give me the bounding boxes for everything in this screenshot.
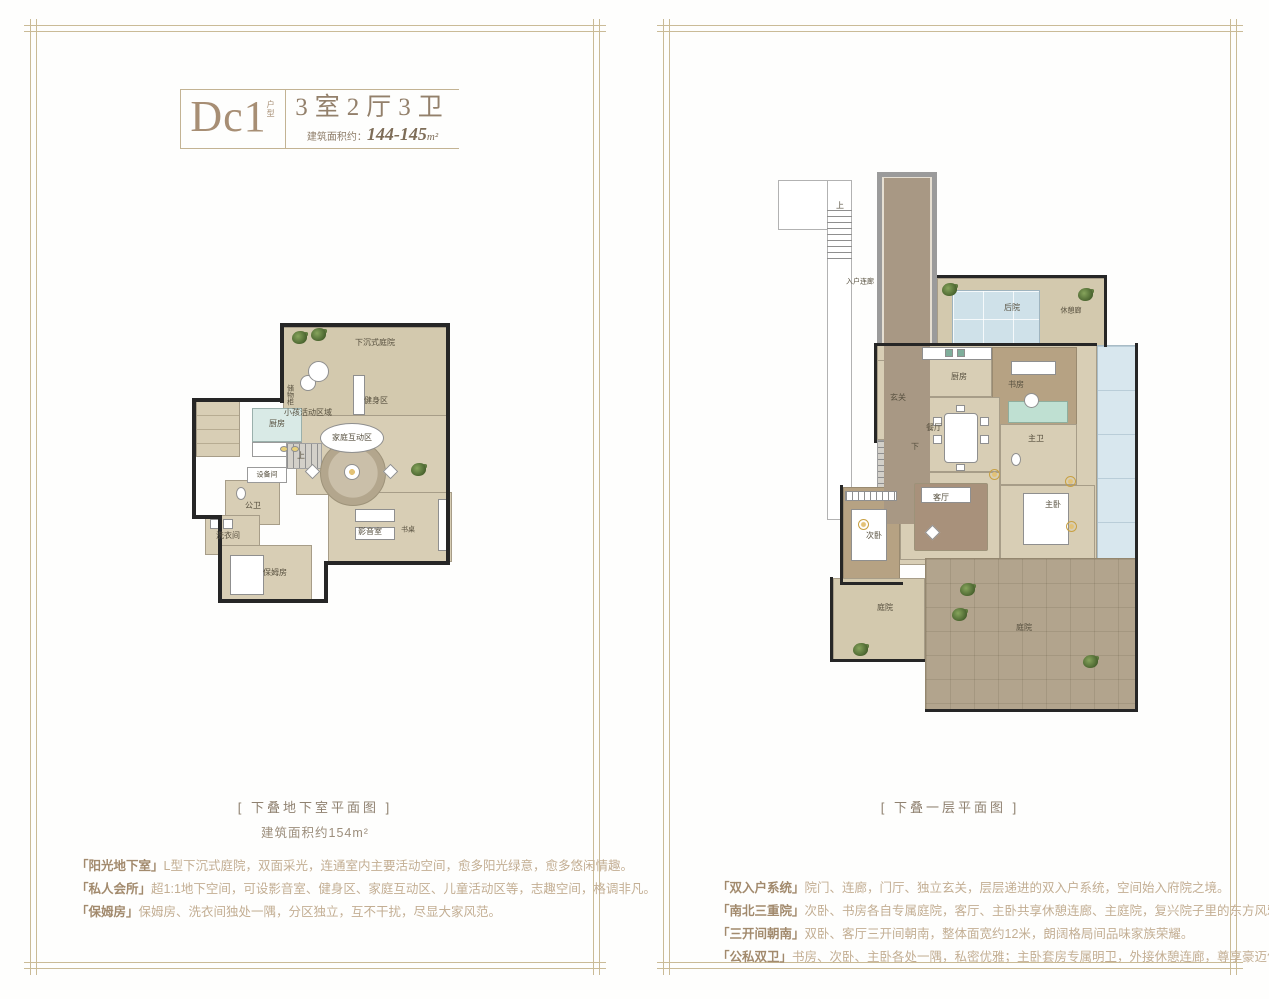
unit-area-value: 144-145 bbox=[367, 124, 427, 144]
light-icon bbox=[1065, 476, 1076, 487]
plant-icon bbox=[1083, 655, 1098, 668]
feature-text: 书房、次卧、主卧各处一隅，私密优雅；主卧套房专属明卫，外接休憩连廊，尊享豪迈气度… bbox=[792, 950, 1269, 964]
frame-line bbox=[657, 31, 1243, 32]
plant-icon bbox=[960, 583, 975, 596]
wall-segment bbox=[218, 515, 222, 603]
wall-segment bbox=[218, 599, 328, 603]
wall-segment bbox=[324, 561, 450, 565]
frame-line bbox=[1230, 19, 1231, 975]
feature-line: 「私人会所」超1:1地下空间，可设影音室、健身区、家庭互动区、儿童活动区等，志趣… bbox=[76, 878, 656, 901]
wall-segment bbox=[280, 323, 450, 327]
plant-icon bbox=[292, 331, 307, 344]
plant-icon bbox=[311, 328, 326, 341]
ground-features: 「双入户系统」院门、连廊，门厅、独立玄关，层层递进的双入户系统，空间始入府院之境… bbox=[717, 877, 1269, 969]
unit-area: 建筑面积约：144-145m² bbox=[307, 124, 438, 145]
unit-layout: 3室2厅3卫 bbox=[295, 94, 450, 122]
feature-text: 保姆房、洗衣间独处一隅，分区独立，互不干扰，尽显大家风范。 bbox=[139, 905, 502, 919]
feature-text: L型下沉式庭院，双面采光，连通室内主要活动空间，愈多阳光绿意，愈多悠闲情趣。 bbox=[164, 859, 633, 873]
right-page-panel: 上 入户连廊 后院 休憩廊 厨房 书房 玄关 餐厅 主卫 下 客厅 主卧 次卧 … bbox=[663, 25, 1237, 969]
feature-text: 双卧、客厅三开间朝南，整体面宽约12米，朗阔格局间品味家族荣耀。 bbox=[805, 927, 1194, 941]
room-courtyard-main bbox=[925, 558, 1138, 712]
washer-icon bbox=[223, 519, 233, 529]
unit-area-unit: m² bbox=[427, 131, 438, 143]
wall-segment bbox=[280, 323, 284, 403]
wall-segment bbox=[1135, 565, 1138, 712]
label-rest-corridor: 休憩廊 bbox=[1061, 308, 1082, 315]
feature-tag: 「公私双卫」 bbox=[717, 950, 792, 964]
outdoor-stair-treads bbox=[827, 210, 852, 262]
label-stairs-down: 下 bbox=[911, 443, 919, 451]
toilet-icon bbox=[236, 487, 246, 500]
feature-line: 「阳光地下室」L型下沉式庭院，双面采光，连通室内主要活动空间，愈多阳光绿意，愈多… bbox=[76, 855, 656, 878]
chair-icon bbox=[980, 417, 989, 426]
plant-icon bbox=[1078, 288, 1093, 301]
label-foyer: 玄关 bbox=[890, 394, 906, 402]
bathtub-icon bbox=[1008, 401, 1068, 423]
unit-code-cell: Dc1 户型 bbox=[181, 90, 286, 148]
feature-line: 「双入户系统」院门、连廊，门厅、独立玄关，层层递进的双入户系统，空间始入府院之境… bbox=[717, 877, 1269, 900]
tea-table-icon bbox=[344, 464, 360, 480]
sofa-icon bbox=[355, 509, 395, 522]
unit-code: Dc1 bbox=[190, 92, 266, 142]
frame-line bbox=[663, 19, 664, 975]
basement-plan-area: 建筑面积约154m² bbox=[30, 822, 600, 841]
chair-icon bbox=[956, 405, 965, 412]
label-stairs-up: 上 bbox=[297, 452, 305, 460]
basement-plan-caption: [ 下叠地下室平面图 ] bbox=[30, 797, 600, 816]
feature-text: 超1:1地下空间，可设影音室、健身区、家庭互动区、儿童活动区等，志趣空间，格调非… bbox=[151, 882, 656, 896]
wall-segment bbox=[937, 275, 1107, 278]
stove-icon bbox=[945, 349, 953, 357]
wall-segment bbox=[1135, 343, 1138, 565]
label-outdoor-stairs-up: 上 bbox=[836, 202, 844, 210]
frame-line bbox=[24, 25, 606, 26]
light-icon bbox=[989, 469, 1000, 480]
toilet-icon bbox=[1011, 453, 1021, 466]
label-guest-bath: 公卫 bbox=[245, 502, 261, 510]
plant-icon bbox=[952, 608, 967, 621]
basement-floor-plan: 下沉式庭院 健身区 小孩活动区域 家庭互动区 厨房 储物柜 设备间 公卫 洗衣间… bbox=[180, 323, 470, 623]
label-backyard: 后院 bbox=[1004, 304, 1020, 312]
bed-icon bbox=[230, 555, 264, 595]
feature-tag: 「双入户系统」 bbox=[717, 881, 805, 895]
unit-title-block: Dc1 户型 3室2厅3卫 建筑面积约：144-145m² bbox=[180, 89, 459, 149]
sink-icon bbox=[957, 349, 965, 357]
feature-line: 「三开间朝南」双卧、客厅三开间朝南，整体面宽约12米，朗阔格局间品味家族荣耀。 bbox=[717, 923, 1269, 946]
frame-line bbox=[1236, 19, 1237, 975]
label-equipment: 设备间 bbox=[257, 472, 278, 479]
label-dining: 餐厅 bbox=[926, 424, 942, 432]
rest-corridor-glass bbox=[1097, 345, 1138, 565]
room-courtyard-west bbox=[833, 578, 925, 662]
unit-area-prefix: 建筑面积约： bbox=[307, 132, 367, 143]
feature-line: 「保姆房」保姆房、洗衣间独处一隅，分区独立，互不干扰，尽显大家风范。 bbox=[76, 901, 656, 924]
room-storage bbox=[196, 400, 240, 457]
backyard-pool bbox=[952, 290, 1040, 345]
left-page-panel: Dc1 户型 3室2厅3卫 建筑面积约：144-145m² bbox=[30, 25, 600, 969]
wall-segment bbox=[874, 343, 877, 443]
feature-line: 「南北三重院」次卧、书房各自专属庭院，客厅、主卧共享休憩连廊、主庭院，复兴院子里… bbox=[717, 900, 1269, 923]
label-study: 书房 bbox=[1008, 381, 1024, 389]
label-entry-corridor: 入户连廊 bbox=[846, 279, 874, 286]
feature-tag: 「私人会所」 bbox=[76, 882, 151, 896]
label-second-bed: 次卧 bbox=[866, 532, 882, 540]
sink-icon bbox=[280, 446, 288, 452]
plant-icon bbox=[942, 283, 957, 296]
basement-features: 「阳光地下室」L型下沉式庭院，双面采光，连通室内主要活动空间，愈多阳光绿意，愈多… bbox=[76, 855, 656, 924]
label-nanny: 保姆房 bbox=[263, 569, 287, 577]
chair-icon bbox=[956, 464, 965, 471]
label-av-room: 影音室 bbox=[358, 528, 382, 536]
wardrobe-icon bbox=[845, 491, 897, 501]
label-cabinet: 储物柜 bbox=[287, 385, 294, 406]
feature-tag: 「阳光地下室」 bbox=[76, 859, 164, 873]
wall-segment bbox=[877, 343, 1097, 346]
feature-tag: 「三开间朝南」 bbox=[717, 927, 805, 941]
label-courtyard-west: 庭院 bbox=[877, 604, 893, 612]
label-laundry: 洗衣间 bbox=[216, 532, 240, 540]
label-desk: 书桌 bbox=[401, 527, 415, 534]
plant-icon bbox=[411, 463, 426, 476]
label-courtyard-main: 庭院 bbox=[1016, 624, 1032, 632]
desk-icon bbox=[1011, 361, 1056, 375]
light-icon bbox=[858, 519, 869, 530]
feature-text: 院门、连廊，门厅、独立玄关，层层递进的双入户系统，空间始入府院之境。 bbox=[805, 881, 1230, 895]
unit-code-tag: 户型 bbox=[267, 100, 276, 118]
ground-plan-caption: [ 下叠一层平面图 ] bbox=[663, 797, 1237, 816]
wall-segment bbox=[192, 398, 284, 402]
wall-segment bbox=[192, 398, 196, 519]
label-family-area: 家庭互动区 bbox=[332, 434, 372, 442]
wall-segment bbox=[324, 561, 328, 603]
plant-icon bbox=[853, 643, 868, 656]
feature-line: 「公私双卫」书房、次卧、主卧各处一隅，私密优雅；主卧套房专属明卫，外接休憩连廊，… bbox=[717, 946, 1269, 969]
frame-line bbox=[657, 25, 1243, 26]
wall-segment bbox=[840, 485, 843, 585]
table-icon bbox=[1024, 393, 1039, 408]
label-master-bed: 主卧 bbox=[1045, 501, 1061, 509]
label-kitchen: 厨房 bbox=[269, 420, 285, 428]
chair-icon bbox=[980, 435, 989, 444]
frame-line bbox=[24, 962, 606, 963]
play-table-icon bbox=[308, 361, 329, 382]
label-sunken-courtyard: 下沉式庭院 bbox=[355, 339, 395, 347]
frame-line bbox=[24, 31, 606, 32]
frame-line bbox=[24, 968, 606, 969]
page: { "left_panel": { "title": { "code": "Dc… bbox=[0, 0, 1269, 999]
label-kids-area: 小孩活动区域 bbox=[284, 409, 332, 417]
ground-floor-plan: 上 入户连廊 后院 休憩廊 厨房 书房 玄关 餐厅 主卫 下 客厅 主卧 次卧 … bbox=[731, 165, 1211, 725]
wall-segment bbox=[925, 709, 1138, 712]
label-gym: 健身区 bbox=[364, 397, 388, 405]
feature-text: 次卧、书房各自专属庭院，客厅、主卧共享休憩连廊、主庭院，复兴院子里的东方风雅。 bbox=[805, 904, 1269, 918]
feature-tag: 「南北三重院」 bbox=[717, 904, 805, 918]
label-master-bath: 主卫 bbox=[1028, 435, 1044, 443]
wall-segment bbox=[446, 323, 450, 565]
label-kitchen: 厨房 bbox=[951, 373, 967, 381]
wall-segment bbox=[840, 582, 903, 585]
dining-table-icon bbox=[944, 413, 978, 463]
feature-tag: 「保姆房」 bbox=[76, 905, 139, 919]
wall-segment bbox=[1104, 275, 1107, 347]
light-icon bbox=[1066, 521, 1077, 532]
gym-equipment-icon bbox=[353, 375, 365, 415]
chair-icon bbox=[933, 435, 942, 444]
unit-summary-cell: 3室2厅3卫 建筑面积约：144-145m² bbox=[286, 90, 459, 148]
label-living: 客厅 bbox=[933, 494, 949, 502]
frame-line bbox=[669, 19, 670, 975]
wall-segment bbox=[830, 659, 925, 662]
wall-segment bbox=[830, 577, 833, 662]
